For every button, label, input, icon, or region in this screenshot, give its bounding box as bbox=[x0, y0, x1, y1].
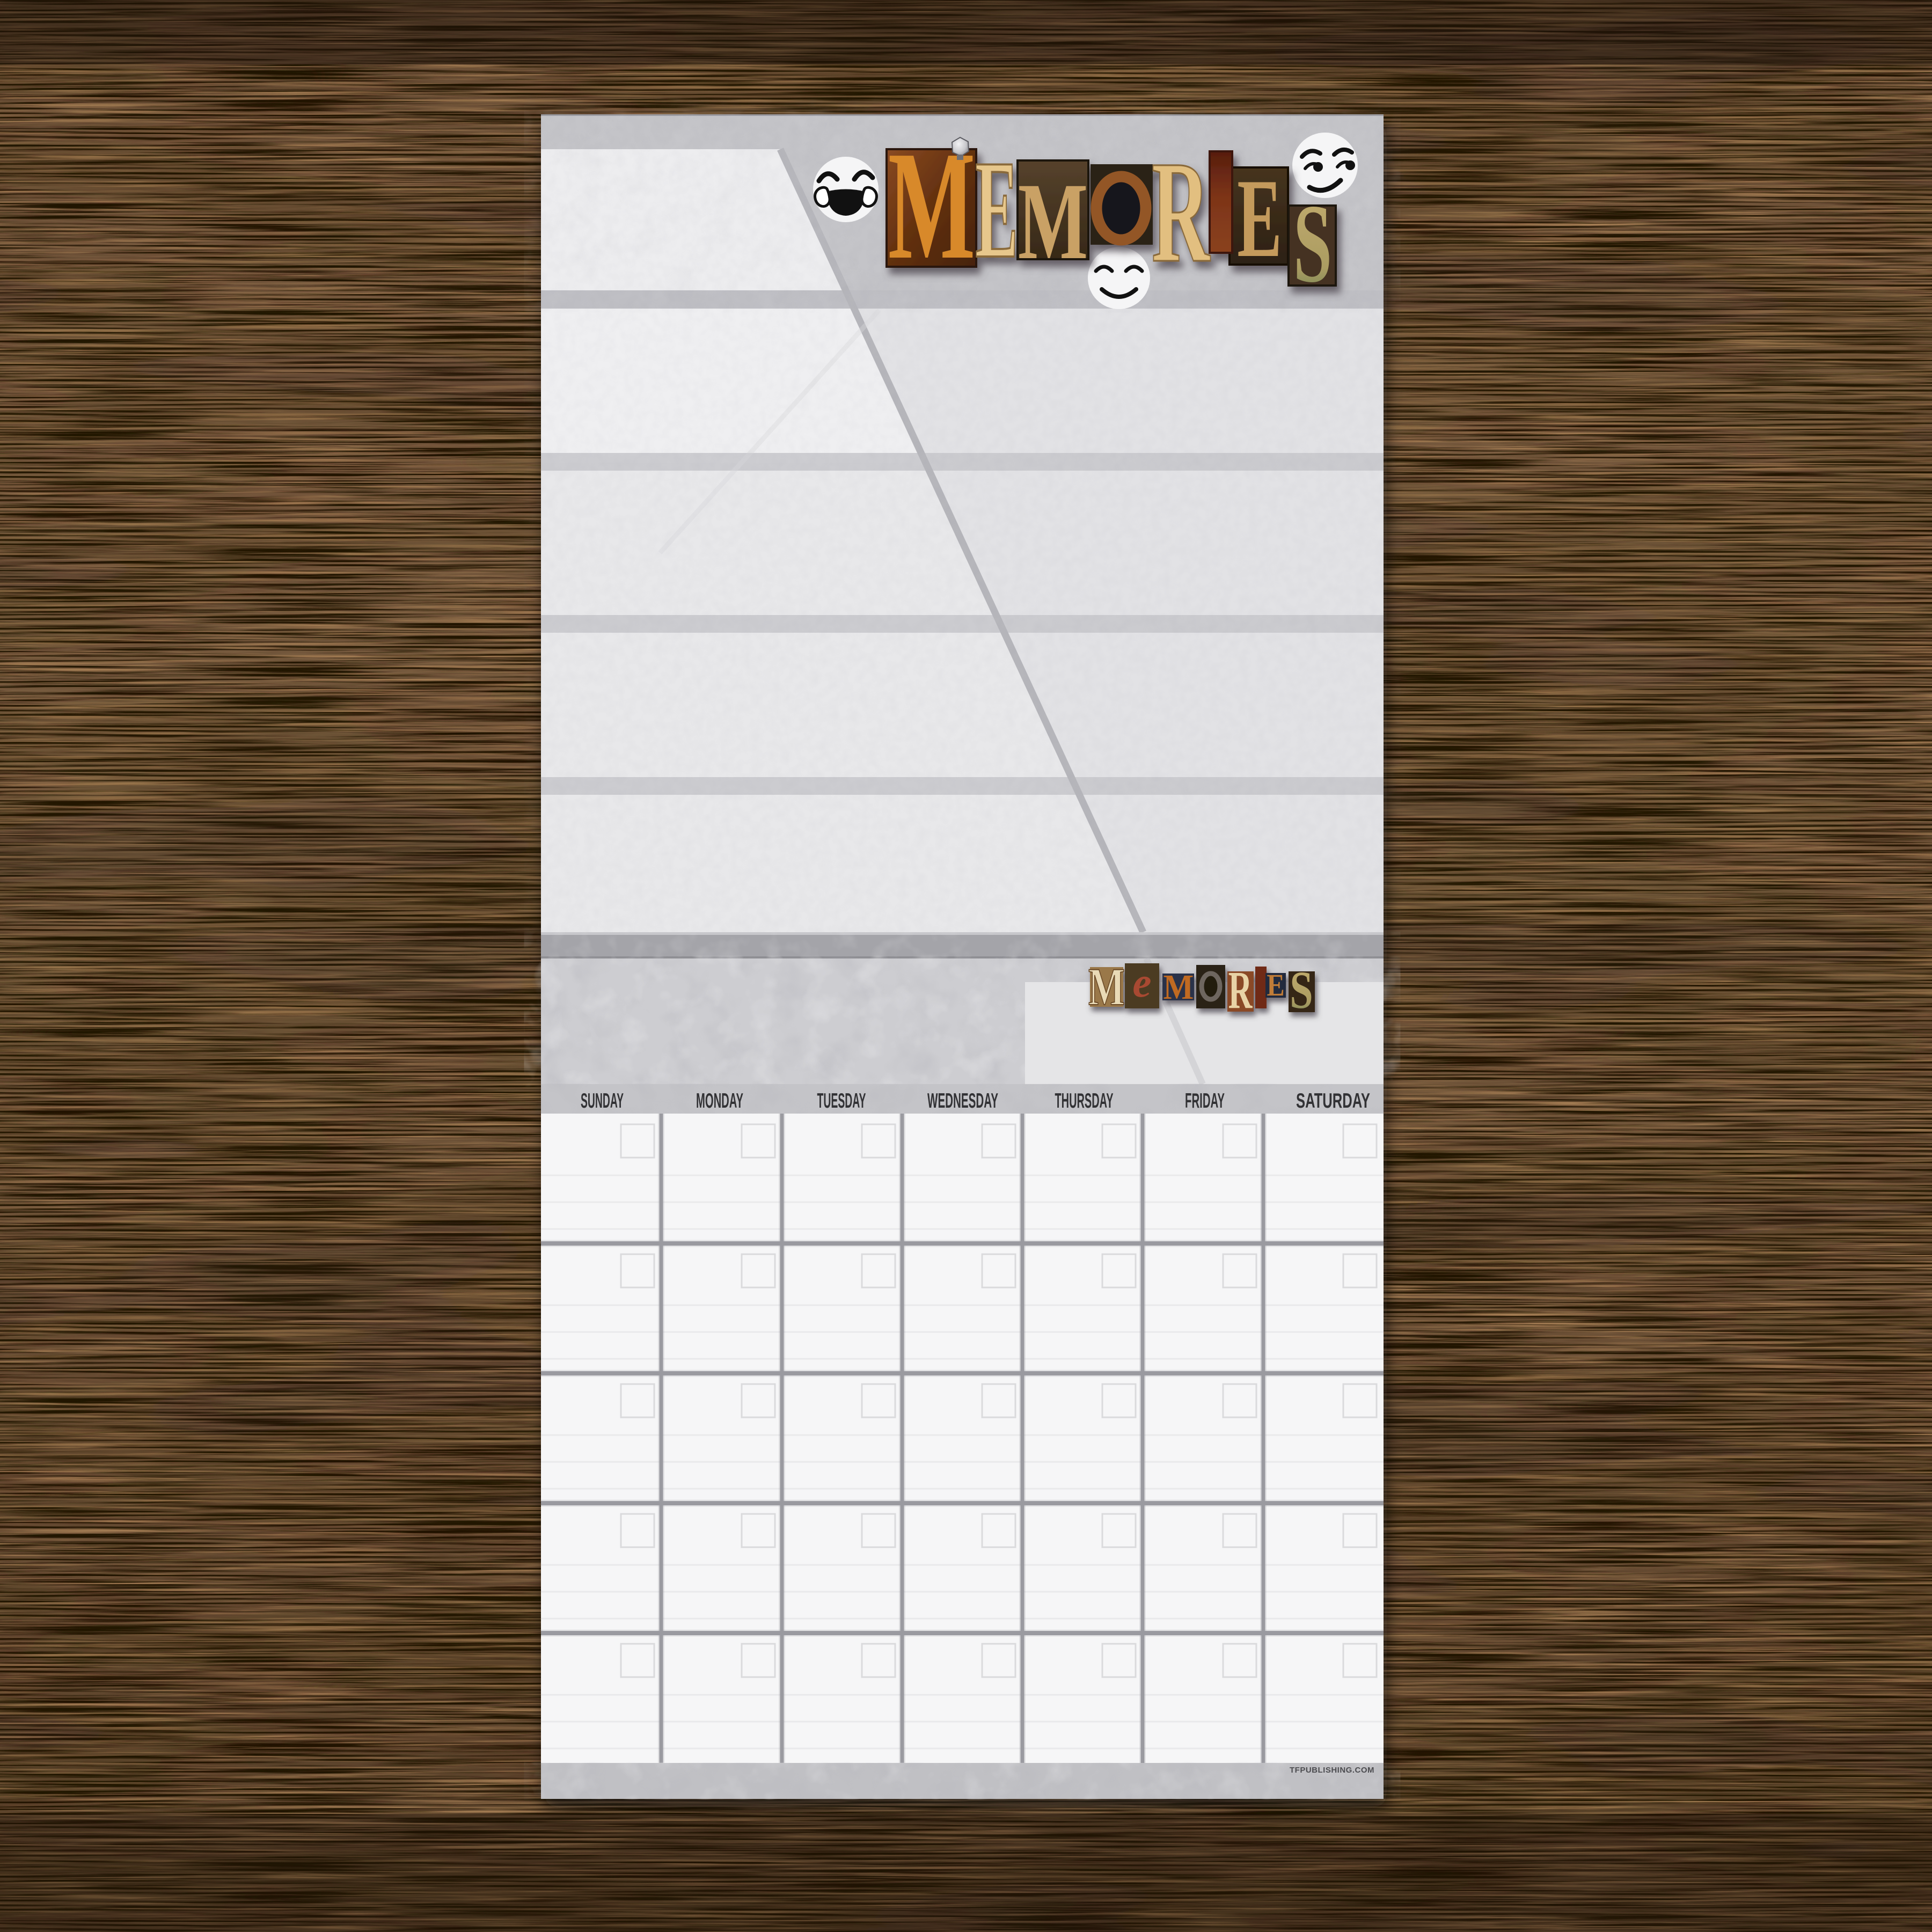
svg-text:E: E bbox=[1267, 968, 1284, 1002]
svg-text:E: E bbox=[1237, 156, 1282, 281]
svg-text:MONDAY: MONDAY bbox=[696, 1089, 743, 1113]
svg-text:SUNDAY: SUNDAY bbox=[581, 1089, 624, 1113]
svg-text:R: R bbox=[1228, 960, 1253, 1020]
svg-text:M: M bbox=[1018, 160, 1088, 282]
svg-text:E: E bbox=[975, 131, 1018, 288]
svg-text:FRIDAY: FRIDAY bbox=[1185, 1089, 1225, 1113]
svg-text:THURSDAY: THURSDAY bbox=[1055, 1089, 1114, 1113]
svg-text:TFPUBLISHING.COM: TFPUBLISHING.COM bbox=[1290, 1766, 1374, 1775]
svg-text:S: S bbox=[1293, 180, 1332, 305]
svg-text:SATURDAY: SATURDAY bbox=[1296, 1089, 1370, 1113]
svg-text:WEDNESDAY: WEDNESDAY bbox=[927, 1089, 998, 1113]
svg-text:M: M bbox=[1088, 956, 1125, 1016]
svg-text:e: e bbox=[1132, 959, 1151, 1006]
svg-text:S: S bbox=[1290, 961, 1313, 1020]
svg-text:R: R bbox=[1152, 130, 1211, 292]
svg-text:TUESDAY: TUESDAY bbox=[817, 1089, 866, 1113]
svg-text:M: M bbox=[1163, 967, 1194, 1006]
